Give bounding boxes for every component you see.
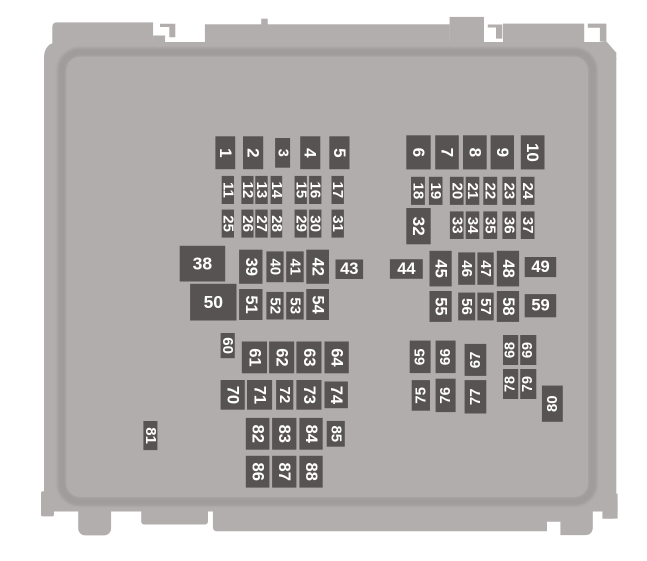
svg-text:65: 65 bbox=[412, 349, 429, 366]
svg-text:77: 77 bbox=[467, 388, 484, 405]
svg-text:45: 45 bbox=[432, 259, 450, 277]
svg-text:28: 28 bbox=[268, 215, 285, 232]
svg-text:58: 58 bbox=[499, 297, 517, 315]
svg-text:36: 36 bbox=[501, 217, 518, 234]
svg-text:70: 70 bbox=[224, 386, 242, 404]
svg-text:85: 85 bbox=[327, 425, 344, 442]
svg-text:40: 40 bbox=[267, 258, 284, 275]
svg-text:25: 25 bbox=[219, 215, 236, 232]
svg-text:9: 9 bbox=[493, 148, 512, 157]
svg-text:41: 41 bbox=[286, 258, 303, 275]
svg-text:73: 73 bbox=[300, 386, 318, 404]
svg-text:31: 31 bbox=[329, 215, 346, 232]
svg-text:55: 55 bbox=[432, 297, 450, 315]
svg-text:19: 19 bbox=[427, 183, 444, 200]
svg-text:66: 66 bbox=[437, 349, 454, 366]
svg-text:24: 24 bbox=[519, 183, 536, 200]
svg-text:35: 35 bbox=[482, 217, 499, 234]
svg-text:13: 13 bbox=[253, 182, 270, 199]
svg-text:33: 33 bbox=[448, 217, 465, 234]
svg-text:75: 75 bbox=[412, 387, 429, 404]
svg-text:88: 88 bbox=[302, 463, 320, 481]
svg-text:63: 63 bbox=[300, 348, 318, 366]
svg-text:18: 18 bbox=[409, 183, 426, 200]
svg-text:20: 20 bbox=[448, 183, 465, 200]
svg-text:23: 23 bbox=[501, 183, 518, 200]
svg-text:83: 83 bbox=[275, 425, 293, 443]
svg-text:68: 68 bbox=[503, 342, 519, 358]
svg-text:74: 74 bbox=[327, 386, 345, 405]
svg-text:84: 84 bbox=[302, 425, 320, 444]
svg-text:51: 51 bbox=[242, 295, 260, 313]
svg-text:10: 10 bbox=[523, 143, 542, 162]
svg-text:30: 30 bbox=[307, 215, 324, 232]
svg-text:64: 64 bbox=[328, 348, 346, 367]
svg-text:34: 34 bbox=[464, 217, 481, 234]
svg-text:8: 8 bbox=[465, 148, 484, 157]
svg-text:42: 42 bbox=[309, 258, 327, 276]
svg-text:53: 53 bbox=[286, 297, 303, 314]
svg-text:79: 79 bbox=[520, 376, 536, 392]
svg-text:54: 54 bbox=[309, 295, 327, 314]
svg-text:32: 32 bbox=[409, 217, 428, 236]
svg-text:3: 3 bbox=[275, 149, 291, 157]
svg-text:2: 2 bbox=[244, 148, 263, 157]
svg-text:44: 44 bbox=[397, 260, 416, 278]
svg-text:14: 14 bbox=[268, 182, 285, 199]
svg-text:71: 71 bbox=[251, 386, 269, 404]
svg-text:87: 87 bbox=[275, 463, 293, 481]
svg-text:49: 49 bbox=[531, 258, 549, 276]
svg-text:80: 80 bbox=[544, 395, 561, 412]
svg-text:17: 17 bbox=[329, 182, 346, 199]
svg-text:6: 6 bbox=[409, 148, 428, 157]
svg-text:48: 48 bbox=[499, 259, 517, 277]
svg-text:67: 67 bbox=[467, 352, 484, 369]
svg-text:81: 81 bbox=[142, 427, 159, 444]
svg-text:1: 1 bbox=[216, 148, 235, 157]
svg-text:52: 52 bbox=[267, 297, 284, 314]
svg-text:72: 72 bbox=[276, 387, 293, 404]
svg-text:4: 4 bbox=[301, 148, 320, 158]
svg-text:43: 43 bbox=[340, 260, 358, 278]
svg-text:61: 61 bbox=[245, 348, 263, 366]
svg-text:39: 39 bbox=[242, 258, 260, 276]
svg-text:22: 22 bbox=[482, 183, 499, 200]
svg-text:21: 21 bbox=[464, 183, 481, 200]
svg-text:38: 38 bbox=[193, 254, 213, 274]
svg-text:76: 76 bbox=[437, 387, 454, 404]
svg-text:59: 59 bbox=[531, 297, 549, 315]
svg-text:57: 57 bbox=[477, 298, 494, 315]
svg-text:69: 69 bbox=[520, 342, 536, 358]
svg-text:86: 86 bbox=[249, 463, 267, 481]
svg-text:78: 78 bbox=[503, 376, 519, 392]
svg-text:60: 60 bbox=[219, 337, 236, 354]
svg-text:62: 62 bbox=[273, 348, 291, 366]
svg-text:37: 37 bbox=[519, 217, 536, 234]
svg-text:46: 46 bbox=[458, 260, 475, 277]
svg-text:7: 7 bbox=[438, 148, 457, 157]
svg-text:27: 27 bbox=[253, 215, 270, 232]
svg-text:11: 11 bbox=[219, 182, 236, 198]
svg-text:82: 82 bbox=[249, 425, 267, 443]
svg-text:5: 5 bbox=[330, 148, 349, 157]
svg-text:50: 50 bbox=[204, 292, 224, 312]
svg-text:47: 47 bbox=[477, 260, 494, 277]
svg-text:56: 56 bbox=[458, 298, 475, 315]
svg-text:16: 16 bbox=[307, 182, 324, 199]
